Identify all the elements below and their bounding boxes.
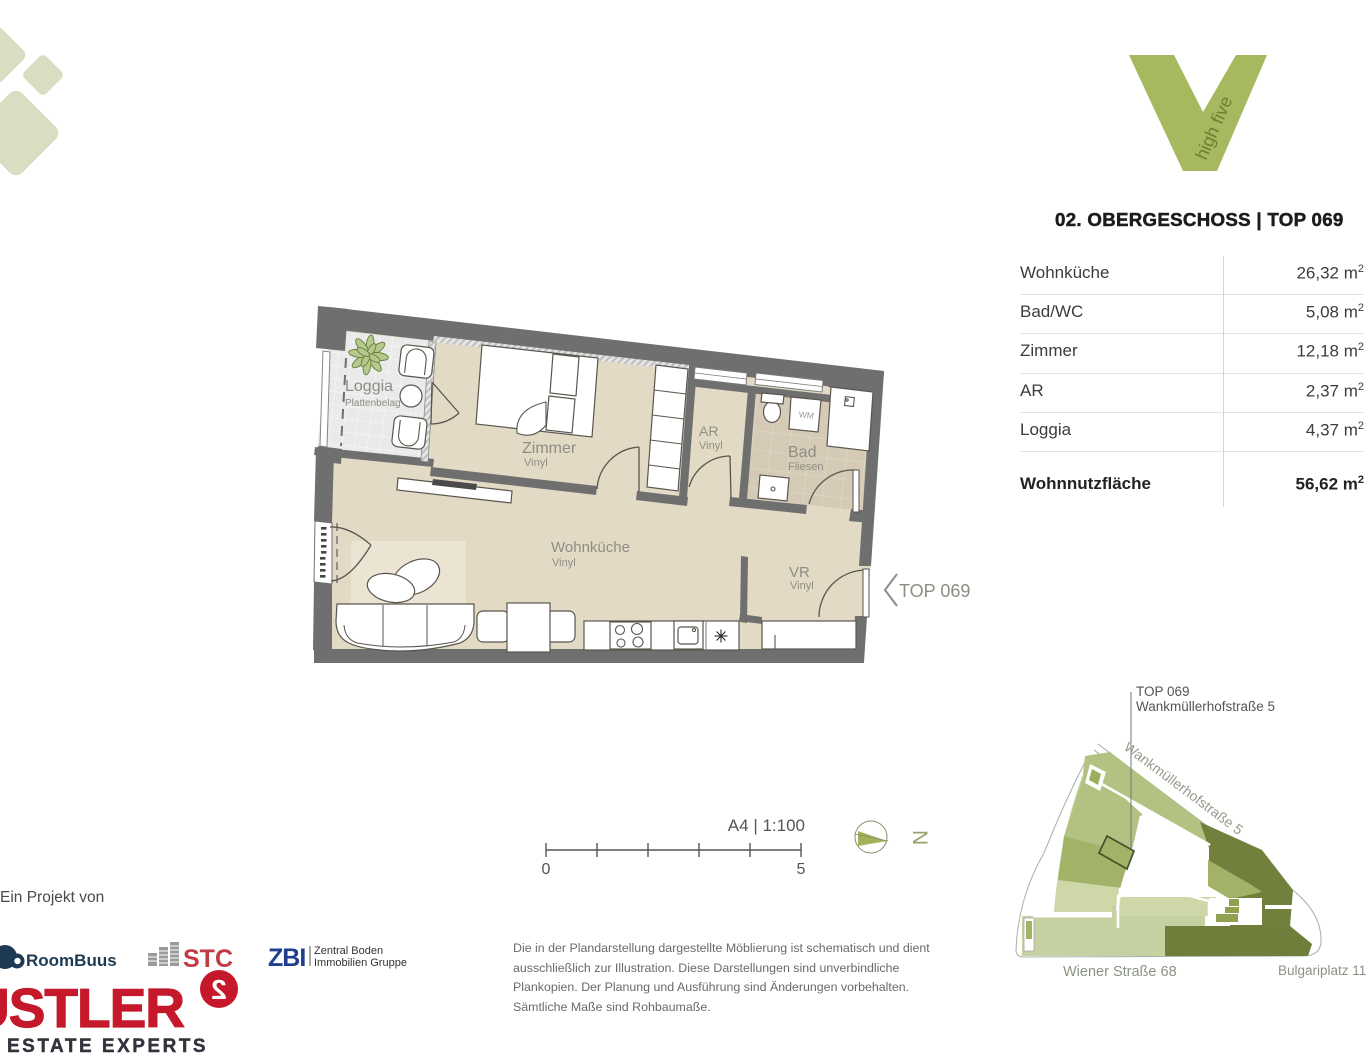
- svg-text:ESTATE EXPERTS: ESTATE EXPERTS: [7, 1036, 208, 1057]
- svg-text:Wankmüllerhofstraße 5: Wankmüllerhofstraße 5: [1136, 699, 1275, 714]
- svg-text:STC: STC: [183, 945, 233, 973]
- svg-text:Vinyl: Vinyl: [552, 557, 576, 569]
- svg-text:2: 2: [211, 974, 227, 1005]
- svg-text:Wohnküche: Wohnküche: [551, 539, 630, 556]
- svg-text:Bad: Bad: [788, 444, 816, 461]
- svg-text:USTLER: USTLER: [0, 977, 184, 1039]
- svg-text:RoomBuus: RoomBuus: [26, 951, 117, 970]
- svg-text:Immobilien Gruppe: Immobilien Gruppe: [314, 957, 407, 969]
- svg-text:ZBI: ZBI: [268, 944, 305, 972]
- svg-text:Zimmer: Zimmer: [522, 440, 577, 457]
- svg-text:Fliesen: Fliesen: [788, 461, 823, 473]
- svg-text:WM: WM: [798, 409, 814, 421]
- svg-text:Vinyl: Vinyl: [790, 580, 814, 592]
- svg-text:VR: VR: [789, 564, 810, 581]
- svg-text:TOP 069: TOP 069: [1136, 684, 1190, 699]
- svg-text:AR: AR: [699, 423, 718, 439]
- svg-text:TOP 069: TOP 069: [899, 581, 970, 601]
- svg-text:N: N: [908, 830, 931, 845]
- svg-text:Plattenbelag: Plattenbelag: [345, 398, 401, 409]
- svg-text:0: 0: [542, 861, 551, 878]
- svg-text:Zentral Boden: Zentral Boden: [314, 945, 383, 957]
- svg-text:A4 | 1:100: A4 | 1:100: [728, 816, 805, 835]
- svg-text:Vinyl: Vinyl: [699, 440, 723, 452]
- svg-text:Vinyl: Vinyl: [524, 457, 548, 469]
- svg-text:Wiener Straße 68: Wiener Straße 68: [1063, 964, 1177, 980]
- svg-text:5: 5: [797, 861, 806, 878]
- svg-text:Bulgariplatz 11: Bulgariplatz 11: [1278, 963, 1366, 978]
- svg-text:Loggia: Loggia: [345, 378, 393, 395]
